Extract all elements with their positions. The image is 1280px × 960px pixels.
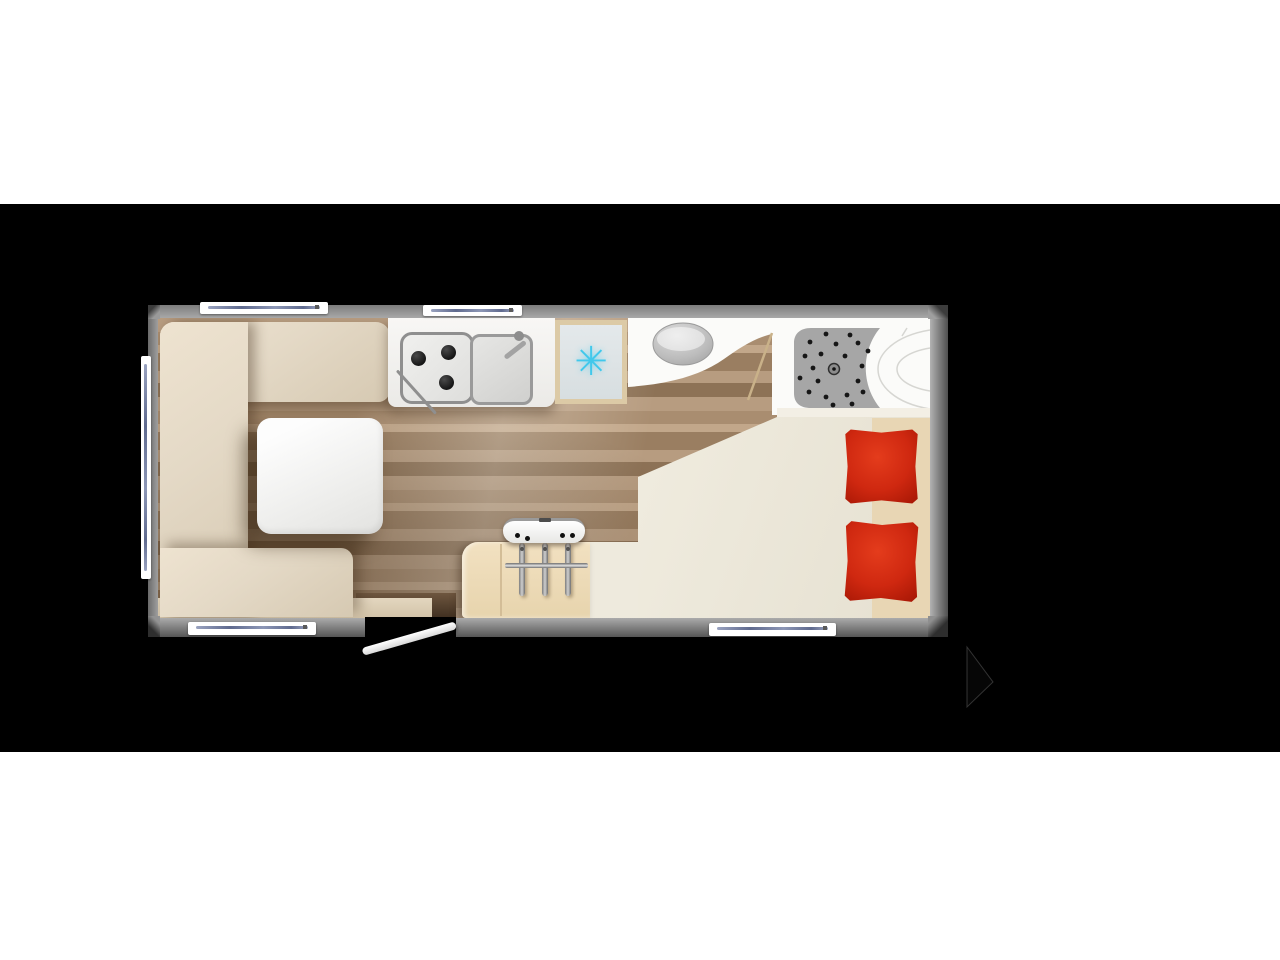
heater-vent [515,533,520,538]
wall-corner-bevel [928,616,948,637]
bed-foot-cabinet [590,542,638,618]
three-burner-hob [400,332,474,404]
bed-pillow [843,428,920,505]
window-glass-line [431,309,514,312]
watermark-triangle-shape [967,647,993,707]
window-latch [823,626,827,630]
window-latch [315,305,319,309]
window-latch [509,308,513,312]
hob-burner [441,345,456,360]
coat-hanger [519,543,525,596]
coat-hanger [565,543,571,596]
wall-corner-bevel [148,305,160,319]
window-bottom-left [188,622,316,635]
window-glass-line [208,306,320,309]
snowflake-icon: ✳ [574,342,608,382]
caravan-floorplan: ✳ [148,305,948,637]
window-top-center [423,305,522,316]
toilet-lid-highlight [657,327,705,351]
dining-table [257,418,383,534]
heater-vent [570,533,575,538]
page-background: { "page": { "background": "#ffffff", "le… [0,0,1280,960]
lounge-sofa-bottom-bench [160,548,353,617]
window-top-left [200,302,328,314]
wardrobe-rail [505,563,588,568]
coat-hanger [542,543,548,596]
watermark-triangle-icon [966,645,996,709]
heater-unit [503,518,585,543]
fridge-freezer: ✳ [555,320,627,404]
wall-corner-bevel [148,616,160,637]
window-glass-line [144,364,147,571]
wall-corner-bevel [928,305,948,319]
heater-vent [560,533,565,538]
bed-head-strip [777,408,930,418]
window-glass-line [717,627,828,630]
window-glass-line [196,626,308,629]
window-side-left [141,356,151,579]
window-bottom-center [709,623,836,636]
shower-drain-center [832,367,836,371]
hob-burner [439,375,454,390]
washroom-door-swing [748,333,772,400]
hob-burner [411,351,426,366]
faucet-base [514,331,524,341]
heater-vent [525,536,530,541]
window-latch [303,625,307,629]
caravan-wall-right [930,305,948,637]
bed-pillow [842,519,920,603]
